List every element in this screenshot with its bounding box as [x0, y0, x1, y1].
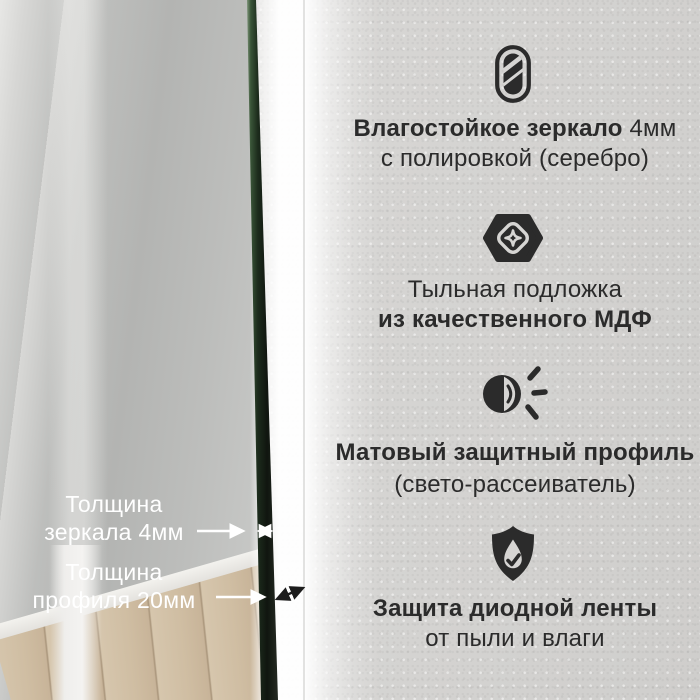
product-infographic: Влагостойкое зеркало 4мм с полировкой (с…: [0, 0, 700, 700]
annotation-arrows: [0, 0, 700, 700]
profile-thickness-span-arrow: [277, 588, 303, 599]
